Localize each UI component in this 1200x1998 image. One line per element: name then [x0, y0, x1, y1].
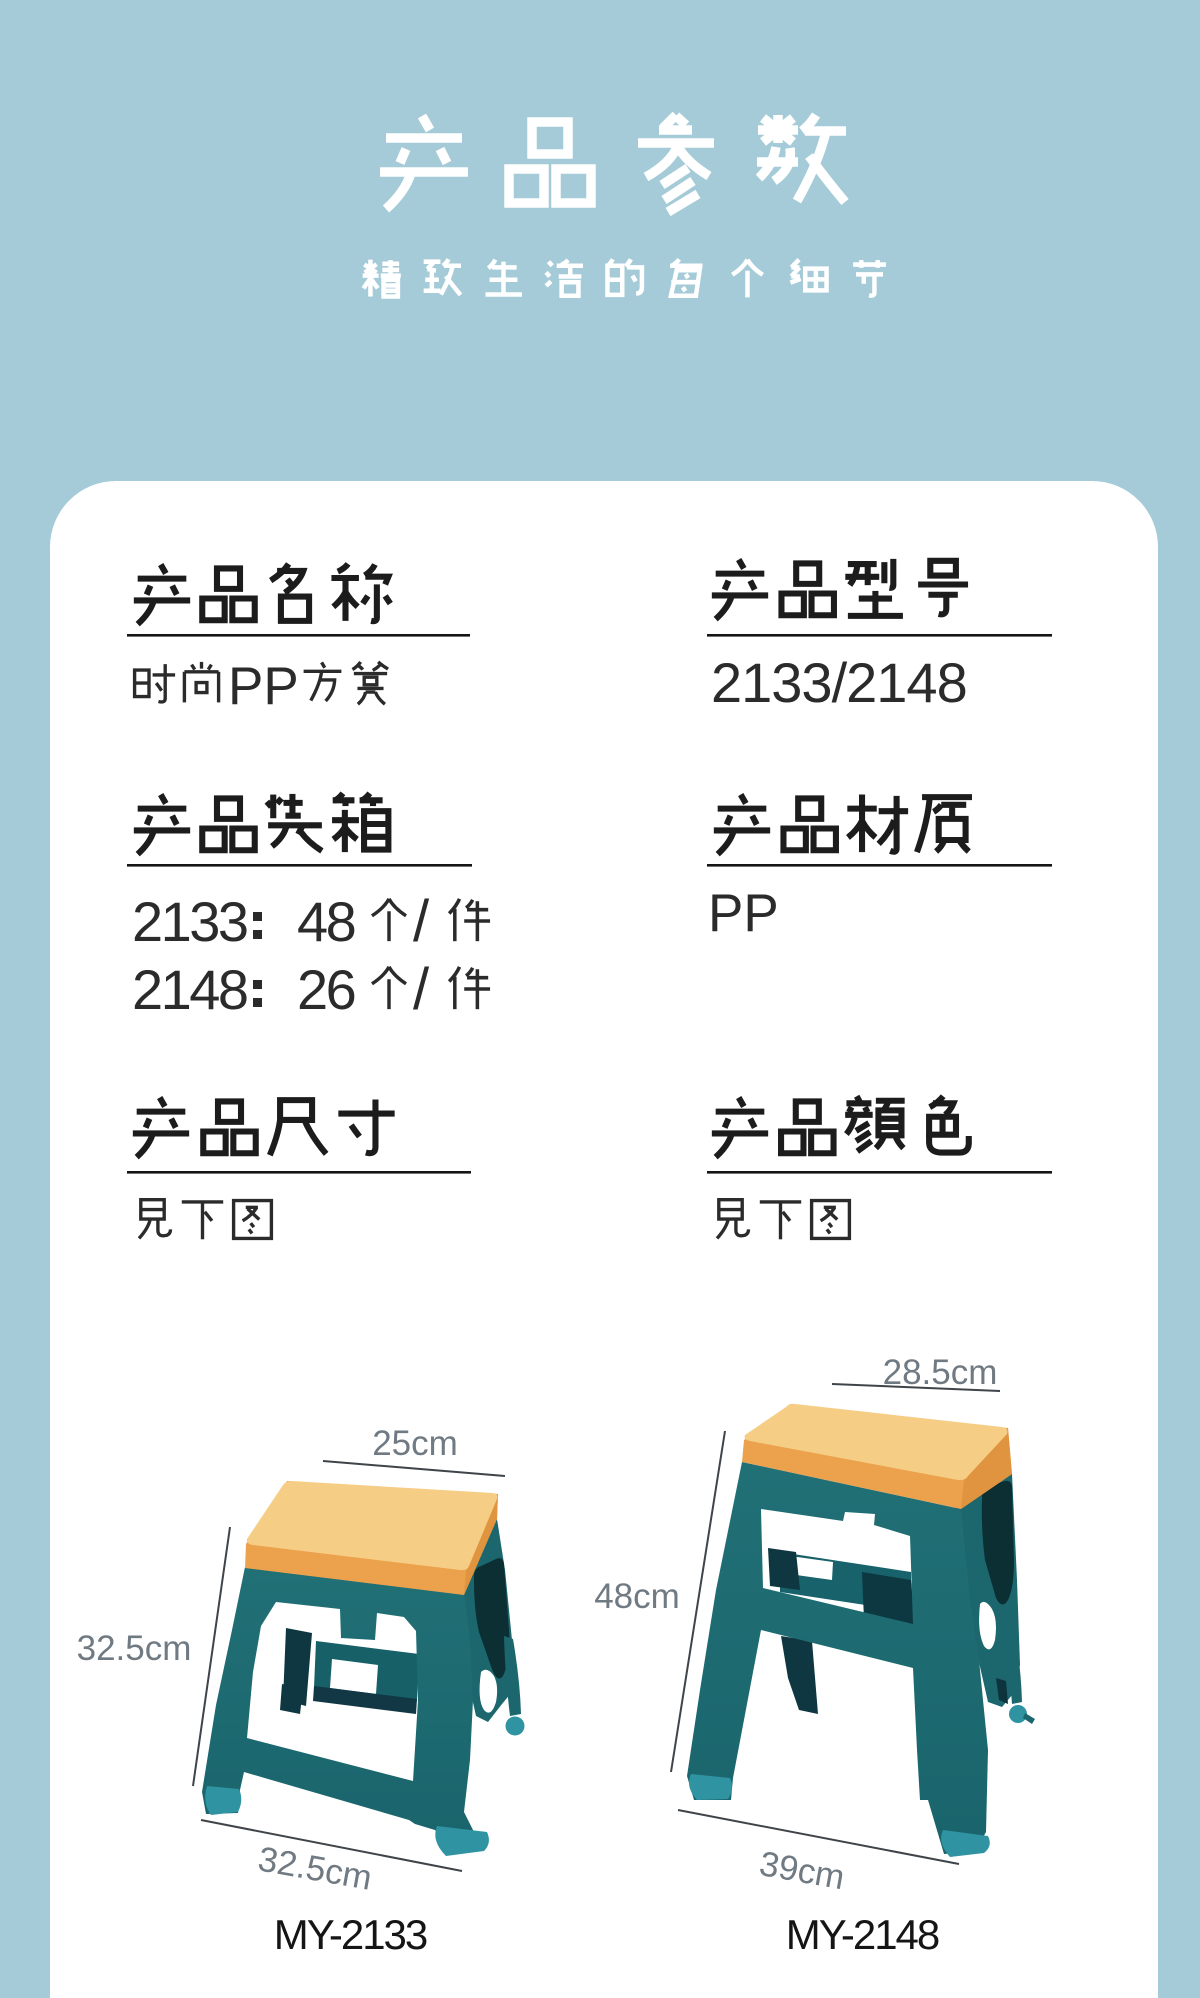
svg-text:2148: 2148 [132, 958, 247, 1021]
svg-text:48: 48 [297, 890, 355, 953]
svg-text:25cm: 25cm [372, 1424, 458, 1463]
svg-text:/: / [413, 889, 430, 954]
svg-text:/: / [413, 957, 430, 1022]
svg-text:PP: PP [708, 884, 779, 943]
svg-text:48cm: 48cm [594, 1577, 680, 1616]
svg-text:2133/2148: 2133/2148 [711, 651, 967, 714]
svg-text:2133: 2133 [132, 890, 247, 953]
svg-text:MY-2148: MY-2148 [786, 1911, 939, 1958]
svg-text:PP: PP [228, 657, 299, 716]
svg-text:26: 26 [297, 958, 355, 1021]
svg-text:32.5cm: 32.5cm [77, 1629, 192, 1668]
svg-text:MY-2133: MY-2133 [274, 1911, 427, 1958]
